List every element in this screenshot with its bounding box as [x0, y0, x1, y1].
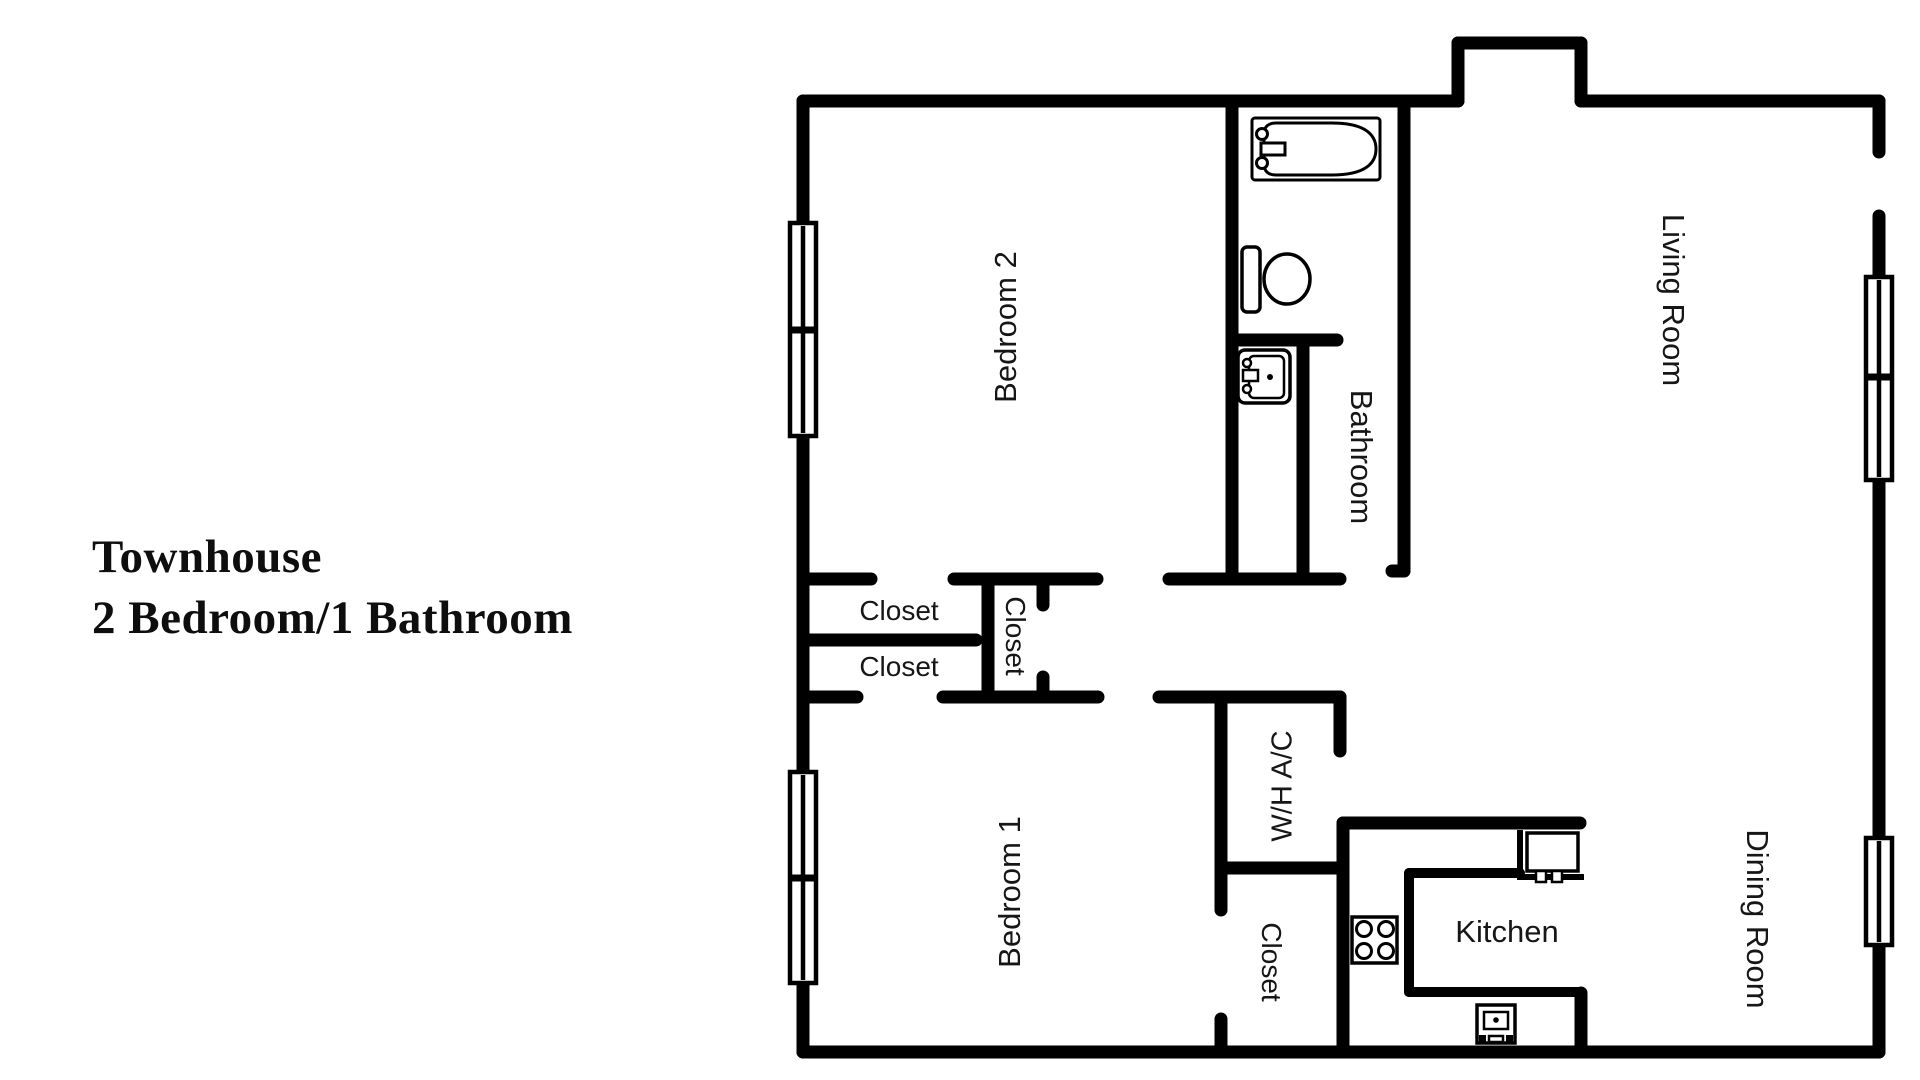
oven-icon: [1477, 1005, 1515, 1043]
room-label-closet-kitchen: Closet: [1255, 922, 1287, 1001]
stove-icon: [1352, 917, 1397, 963]
room-label-kitchen: Kitchen: [1455, 914, 1558, 950]
bathtub-icon: [1252, 118, 1380, 180]
room-label-bedroom-1: Bedroom 1: [992, 816, 1028, 968]
room-label-bedroom-2: Bedroom 2: [988, 251, 1024, 403]
toilet-icon: [1242, 247, 1310, 312]
window-icon: [790, 223, 816, 436]
room-label-bathroom: Bathroom: [1343, 390, 1379, 524]
bathroom-sink-icon: [1238, 350, 1290, 403]
room-label-utility-wh-ac: W/H A/C: [1267, 730, 1300, 841]
window-icon: [790, 772, 816, 983]
plan-title-line1: Townhouse: [92, 527, 573, 588]
plan-title-line2: 2 Bedroom/1 Bathroom: [92, 588, 573, 649]
room-label-dining-room: Dining Room: [1739, 829, 1775, 1008]
floor-plan-page: { "title": { "line1": "Townhouse", "line…: [0, 0, 1920, 1080]
room-label-closet-hallway: Closet: [999, 596, 1031, 675]
window-icon: [1866, 277, 1892, 480]
interior-walls: [803, 101, 1581, 1052]
window-icon: [1866, 838, 1892, 945]
room-label-closet-upper: Closet: [859, 595, 938, 627]
room-label-living-room: Living Room: [1655, 214, 1691, 386]
room-label-closet-lower: Closet: [859, 651, 938, 683]
plan-title: Townhouse 2 Bedroom/1 Bathroom: [92, 527, 573, 649]
